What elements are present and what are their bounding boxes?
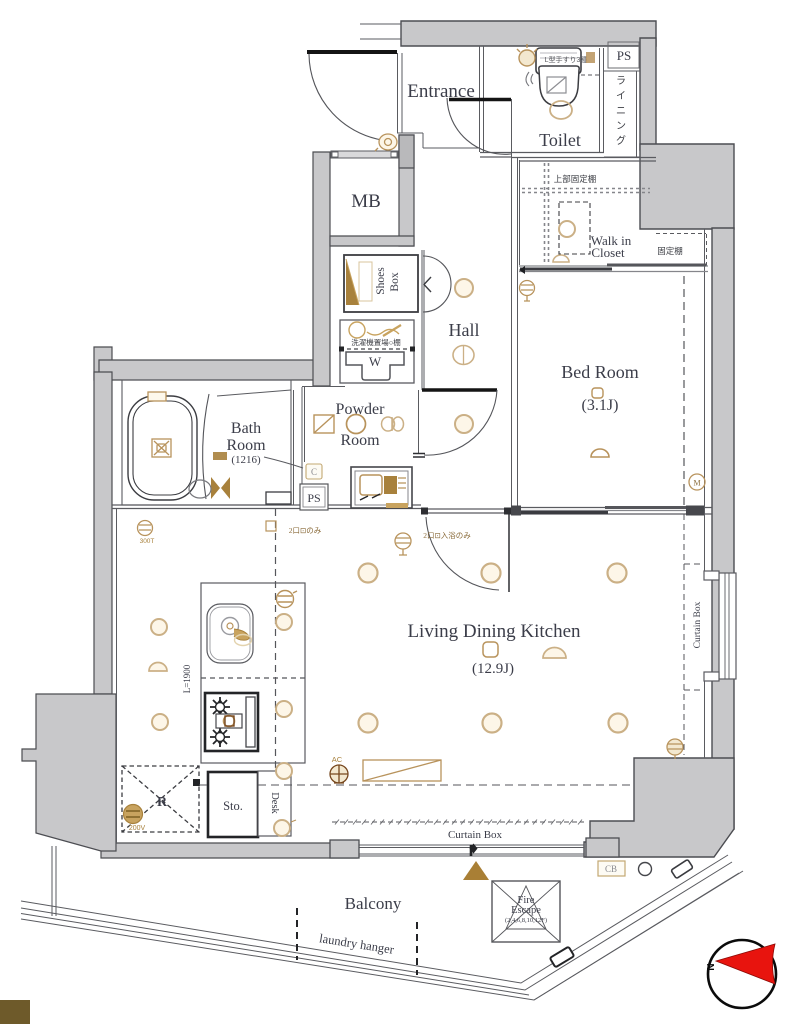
svg-text:(1216): (1216) <box>231 454 261 466</box>
svg-text:L=1900: L=1900 <box>182 664 192 693</box>
svg-text:Closet: Closet <box>591 245 625 260</box>
svg-text:Room: Room <box>340 432 380 449</box>
svg-text:Desk: Desk <box>269 792 280 814</box>
svg-text:2口⊡入浴のみ: 2口⊡入浴のみ <box>423 530 471 540</box>
svg-text:Toilet: Toilet <box>539 130 581 150</box>
svg-text:Escape: Escape <box>511 905 541 916</box>
svg-text:C: C <box>311 467 317 477</box>
svg-text:W: W <box>369 354 382 369</box>
svg-text:L型手すり3種: L型手すり3種 <box>545 55 588 64</box>
svg-text:M: M <box>693 479 700 488</box>
svg-text:300T: 300T <box>140 538 155 545</box>
svg-text:N: N <box>706 963 717 970</box>
svg-text:ニ: ニ <box>616 106 626 117</box>
svg-text:Room: Room <box>226 437 266 454</box>
svg-text:CB: CB <box>605 864 617 874</box>
svg-text:MB: MB <box>351 191 381 212</box>
svg-text:ン: ン <box>616 121 626 132</box>
svg-text:R: R <box>157 795 168 810</box>
svg-text:PS: PS <box>617 48 631 63</box>
svg-text:Hall: Hall <box>449 320 480 340</box>
svg-text:Powder: Powder <box>336 401 386 418</box>
svg-text:Box: Box <box>389 272 401 291</box>
svg-text:(3.1J): (3.1J) <box>582 397 619 414</box>
svg-text:Sto.: Sto. <box>223 799 243 813</box>
svg-text:Bath: Bath <box>231 420 261 437</box>
svg-text:Curtain Box: Curtain Box <box>693 601 703 648</box>
svg-text:上部固定棚: 上部固定棚 <box>554 174 597 184</box>
svg-text:イ: イ <box>616 91 626 102</box>
svg-text:Bed Room: Bed Room <box>561 362 639 382</box>
svg-text:Shoes: Shoes <box>375 267 387 295</box>
svg-text:洗濯機置場○棚: 洗濯機置場○棚 <box>351 337 401 347</box>
svg-text:PS: PS <box>307 491 320 505</box>
svg-text:ラ: ラ <box>616 75 626 87</box>
svg-text:Curtain Box: Curtain Box <box>448 829 503 841</box>
svg-text:Entrance: Entrance <box>407 81 475 102</box>
svg-text:(12.9J): (12.9J) <box>472 661 514 677</box>
svg-text:(2,4,6,8,10,12F): (2,4,6,8,10,12F) <box>505 917 547 924</box>
svg-text:AC: AC <box>332 755 343 764</box>
svg-text:200V: 200V <box>129 825 146 832</box>
svg-text:固定棚: 固定棚 <box>657 246 683 256</box>
svg-text:Living Dining Kitchen: Living Dining Kitchen <box>407 621 581 642</box>
svg-text:Balcony: Balcony <box>345 894 402 913</box>
svg-text:2口⊡のみ: 2口⊡のみ <box>289 526 322 535</box>
svg-text:グ: グ <box>616 134 626 147</box>
